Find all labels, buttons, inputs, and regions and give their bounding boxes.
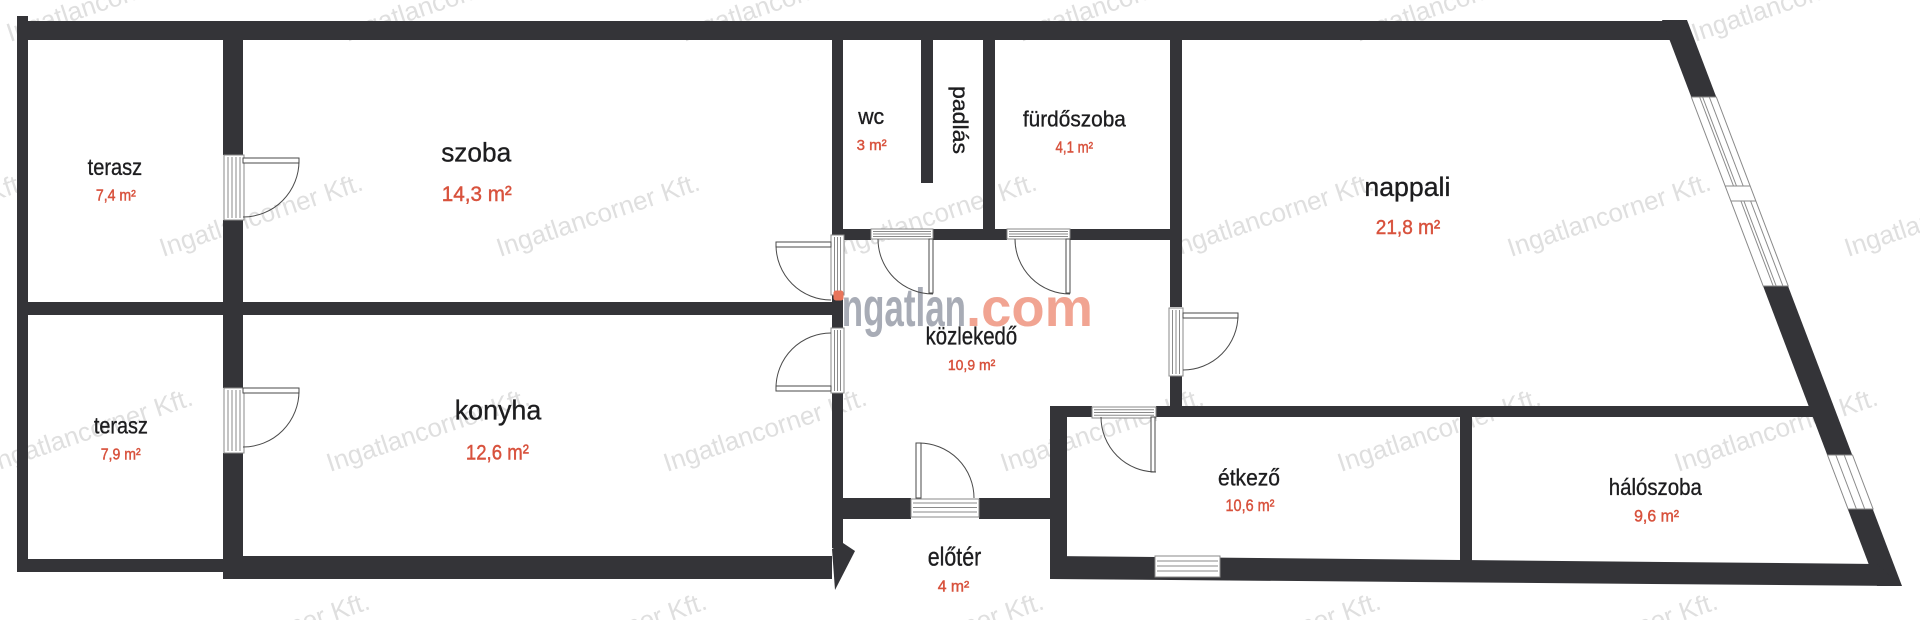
svg-text:10,6 m²: 10,6 m²	[1226, 497, 1275, 515]
svg-text:konyha: konyha	[455, 395, 542, 426]
svg-text:3 m²: 3 m²	[857, 137, 887, 154]
svg-text:9,6 m²: 9,6 m²	[1634, 507, 1679, 526]
svg-text:nappali: nappali	[1364, 172, 1450, 202]
svg-text:21,8 m²: 21,8 m²	[1376, 216, 1441, 239]
svg-text:fürdőszoba: fürdőszoba	[1023, 107, 1127, 132]
svg-text:közlekedő: közlekedő	[926, 323, 1018, 351]
svg-text:10,9 m²: 10,9 m²	[948, 357, 996, 374]
svg-text:hálószoba: hálószoba	[1609, 474, 1703, 500]
svg-text:wc: wc	[857, 104, 884, 129]
svg-text:7,4 m²: 7,4 m²	[96, 188, 136, 205]
svg-text:szoba: szoba	[441, 138, 512, 168]
svg-text:12,6 m²: 12,6 m²	[466, 442, 529, 465]
svg-text:4,1 m²: 4,1 m²	[1056, 140, 1094, 157]
svg-text:7,9 m²: 7,9 m²	[101, 447, 142, 464]
svg-text:előtér: előtér	[928, 542, 982, 572]
svg-text:14,3 m²: 14,3 m²	[442, 182, 512, 206]
svg-text:terasz: terasz	[94, 413, 148, 439]
svg-text:4 m²: 4 m²	[938, 579, 970, 596]
svg-text:terasz: terasz	[88, 154, 143, 180]
svg-text:étkező: étkező	[1218, 465, 1280, 491]
svg-text:padlás: padlás	[948, 86, 971, 154]
